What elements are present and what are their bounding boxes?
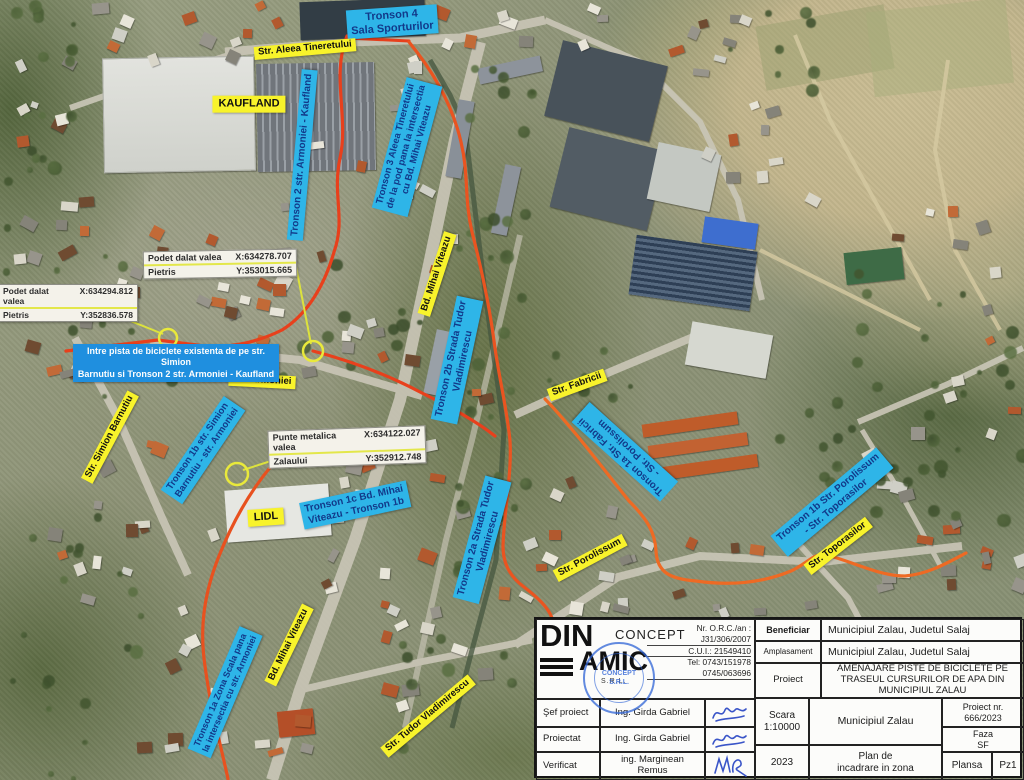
poi-label-kaufland: KAUFLAND: [212, 96, 285, 113]
building: [477, 667, 493, 680]
tree: [938, 470, 945, 477]
staff-name: ing. Marginean Remus: [600, 752, 705, 780]
building: [93, 500, 102, 509]
tree: [520, 209, 531, 220]
tree: [21, 632, 27, 638]
orc-value: J31/306/2007: [647, 634, 751, 646]
tree: [856, 323, 869, 336]
building: [549, 530, 561, 540]
tree: [32, 154, 41, 163]
building: [295, 714, 312, 727]
building: [757, 171, 769, 183]
signature-icon: [710, 754, 750, 778]
tree: [73, 549, 83, 559]
coord-name: Punte metalica valea: [272, 430, 356, 453]
plansa-label: Plansa: [942, 752, 992, 780]
building: [55, 219, 67, 230]
sports-field: [843, 247, 904, 285]
tree: [819, 442, 828, 451]
building: [917, 534, 934, 544]
title-block: DIN CONCEPT AMIC S.R.L. Nr. O.R.C./an : …: [534, 617, 1022, 778]
scara-value: Scara 1:10000: [755, 698, 809, 745]
company-registration: Nr. O.R.C./an : J31/306/2007 C.U.I.: 215…: [647, 623, 751, 680]
tree: [402, 652, 412, 662]
coord-name: Zalaului: [273, 455, 307, 466]
beneficiar-label: Beneficiar: [755, 619, 821, 641]
building: [137, 741, 153, 753]
tree: [71, 776, 77, 780]
coord-y: Y:352836.578: [80, 310, 133, 320]
tree: [960, 390, 968, 398]
building: [728, 133, 739, 146]
building: [990, 266, 1003, 278]
building: [430, 473, 446, 483]
building: [947, 205, 957, 216]
coord-y: Y:352912.748: [365, 451, 421, 463]
building: [61, 202, 78, 213]
tree: [130, 645, 143, 658]
tree: [138, 613, 144, 619]
building: [47, 527, 63, 542]
staff-role: Şef proiect: [536, 699, 600, 727]
building: [892, 233, 904, 241]
building: [598, 571, 614, 582]
tree: [488, 255, 493, 260]
company-logo-zone: DIN CONCEPT AMIC S.R.L. Nr. O.R.C./an : …: [536, 619, 755, 699]
coord-label-podet-2: Podet dalat valeaX:634294.812 PietrisY:3…: [0, 284, 138, 322]
tree: [1004, 346, 1017, 359]
staff-name: Ing. Girda Gabriel: [600, 699, 705, 727]
building: [254, 739, 270, 749]
tree: [951, 511, 961, 521]
building: [898, 566, 911, 578]
beneficiar-value: Municipiul Zalau, Judetul Salaj: [821, 619, 1024, 641]
building: [947, 579, 957, 591]
building: [730, 543, 739, 554]
coord-x: X:634294.812: [80, 286, 133, 306]
logo-bar: [540, 658, 573, 662]
tree: [502, 216, 513, 227]
building: [911, 427, 925, 439]
tree: [38, 52, 48, 62]
cui-value: C.U.I.: 21549410: [647, 646, 751, 658]
tree: [832, 461, 843, 472]
building: [536, 564, 548, 572]
tree: [852, 357, 863, 368]
building: [269, 307, 284, 317]
logo-bar: [540, 672, 573, 676]
coord-x: X:634278.707: [235, 251, 292, 262]
tree: [71, 22, 76, 27]
building: [404, 354, 420, 367]
staff-name: Ing. Girda Gabriel: [600, 727, 705, 752]
building: [597, 15, 608, 22]
tel-value-2: 0745/063696: [647, 668, 751, 680]
building: [341, 341, 354, 353]
signature-sef-proiect: [705, 699, 755, 727]
proiect-nr: Proiect nr. 666/2023: [942, 698, 1024, 727]
tree: [103, 254, 108, 259]
tree: [819, 472, 829, 482]
building: [464, 34, 477, 49]
an-value: 2023: [755, 745, 809, 780]
coord-y: Y:353015.665: [236, 265, 292, 276]
signature-proiectat: [705, 727, 755, 752]
tree: [832, 397, 844, 409]
tree: [29, 0, 42, 13]
tree: [65, 56, 75, 66]
building: [498, 587, 510, 601]
tree: [128, 587, 138, 597]
tree: [102, 394, 107, 399]
building: [1008, 406, 1021, 413]
tree: [960, 291, 966, 297]
building: [569, 601, 584, 616]
plansa-value: Pz1: [992, 752, 1024, 780]
route-info-banner: Intre pista de biciclete existenta de pe…: [73, 344, 279, 382]
coord-name: Podet dalat valea: [148, 252, 222, 263]
tree: [330, 259, 342, 271]
logo-bar: [540, 665, 573, 669]
building: [726, 172, 740, 183]
tree: [808, 66, 821, 79]
logo-text-srl: S.R.L.: [601, 678, 626, 685]
amplasament-value: Municipiul Zalau, Judetul Salaj: [821, 641, 1024, 663]
building: [519, 35, 534, 47]
coord-name: Pietris: [148, 267, 176, 277]
proiect-value: AMENAJARE PISTE DE BICICLETE PE TRASEUL …: [821, 663, 1024, 698]
tree: [436, 634, 446, 644]
building: [13, 253, 26, 264]
proiect-label: Proiect: [755, 663, 821, 698]
tree: [442, 663, 455, 676]
tree: [297, 340, 311, 354]
building: [79, 226, 88, 236]
signature-icon: [710, 730, 750, 750]
field-patch: [866, 0, 1014, 97]
building: [380, 568, 391, 580]
tree: [775, 434, 784, 443]
tree: [467, 390, 472, 395]
coord-label-punte: Punte metalica valeaX:634122.027 Zalaulu…: [267, 425, 426, 468]
tree: [82, 740, 87, 745]
tree: [48, 771, 54, 777]
tree: [465, 113, 475, 123]
tree: [48, 161, 60, 173]
coord-name: Pietris: [3, 310, 29, 320]
building: [753, 608, 765, 615]
building: [749, 544, 765, 556]
tree: [862, 289, 871, 298]
tree: [997, 514, 1011, 528]
staff-role: Proiectat: [536, 727, 600, 752]
building: [952, 239, 968, 250]
tree: [500, 250, 514, 264]
tree: [1006, 326, 1019, 339]
building: [414, 61, 421, 74]
tree: [1016, 449, 1024, 463]
building: [692, 68, 709, 77]
building: [472, 388, 481, 396]
tree: [39, 155, 47, 163]
signature-verificat: [705, 752, 755, 780]
orc-label: Nr. O.R.C./an :: [647, 623, 751, 634]
logo-text-amic: AMIC: [579, 646, 648, 677]
tree: [854, 269, 864, 279]
kaufland-building: [102, 56, 256, 174]
tree: [128, 328, 135, 335]
tree: [33, 13, 44, 24]
tree: [489, 66, 497, 74]
building: [761, 125, 769, 135]
tree: [547, 378, 552, 383]
tree: [94, 513, 103, 522]
coord-x: X:634122.027: [364, 427, 421, 449]
tree: [346, 361, 356, 371]
tree: [518, 126, 530, 138]
tree: [600, 347, 608, 355]
tree: [530, 90, 536, 96]
building: [941, 565, 956, 577]
tree: [921, 334, 929, 342]
coord-label-podet-1: Podet dalat valeaX:634278.707 PietrisY:3…: [143, 249, 297, 280]
tel-value: Tel: 0743/151978: [647, 657, 751, 668]
tree: [457, 500, 464, 507]
poi-label-lidl: LIDL: [247, 507, 285, 526]
staff-role: Verificat: [536, 752, 600, 780]
tree: [68, 325, 78, 335]
building: [79, 197, 95, 208]
tree: [765, 10, 772, 17]
municipiu-value: Municipiul Zalau: [809, 698, 942, 745]
faza: Faza SF: [942, 727, 1024, 752]
tree: [29, 534, 37, 542]
tree: [4, 224, 11, 231]
building: [126, 524, 138, 537]
tree: [66, 45, 76, 55]
tree: [500, 651, 508, 659]
plan-sheet: Tronson 4 Sala Sporturilor Tronson 2 str…: [0, 0, 1024, 780]
tree: [872, 382, 882, 392]
building: [273, 284, 285, 296]
tree: [918, 464, 930, 476]
tree: [488, 213, 500, 225]
building: [92, 3, 110, 15]
tree: [775, 45, 784, 54]
building: [243, 28, 252, 37]
tree: [628, 384, 633, 389]
building: [882, 573, 897, 583]
tree: [3, 268, 10, 275]
signature-icon: [710, 702, 750, 724]
amplasament-label: Amplasament: [755, 641, 821, 663]
plan-title: Plan de incadrare in zona: [809, 745, 942, 780]
coord-name: Podet dalat valea: [3, 286, 72, 306]
tree: [520, 478, 532, 490]
tree: [848, 425, 856, 433]
tree: [498, 327, 510, 339]
tree: [833, 433, 843, 443]
tree: [396, 319, 409, 332]
